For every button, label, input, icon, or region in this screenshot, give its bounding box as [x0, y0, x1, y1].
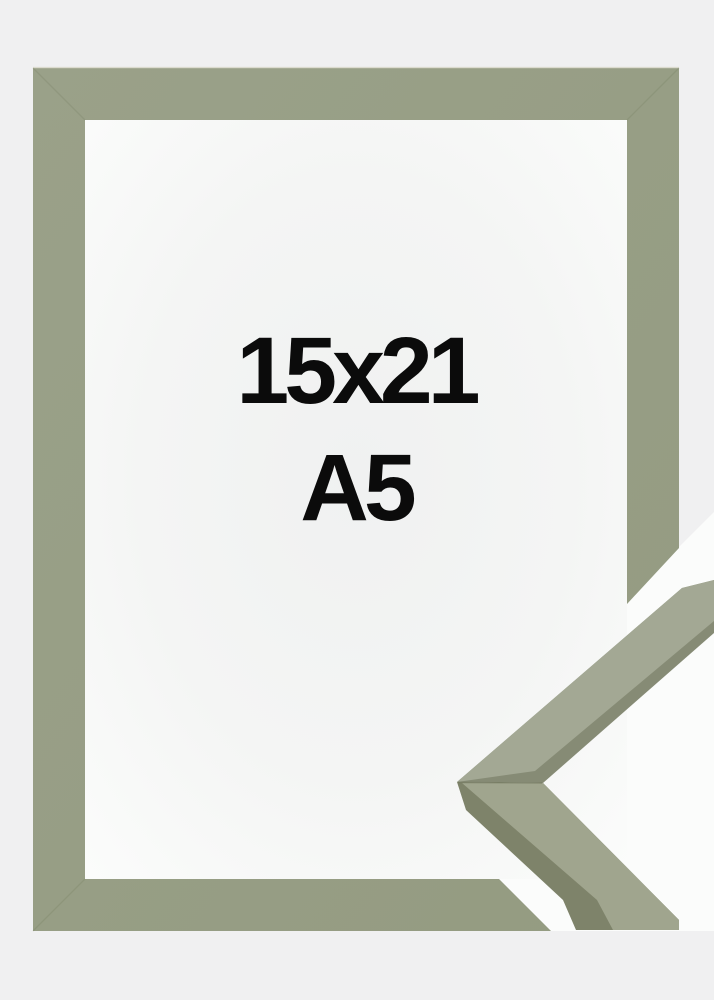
frame-product-photo: 15x21 A5: [0, 0, 714, 1000]
size-label-format: A5: [85, 430, 627, 547]
size-label-dimensions: 15x21: [85, 313, 627, 430]
size-label: 15x21 A5: [85, 313, 627, 547]
corner-detail-miter-seam: [458, 783, 542, 784]
